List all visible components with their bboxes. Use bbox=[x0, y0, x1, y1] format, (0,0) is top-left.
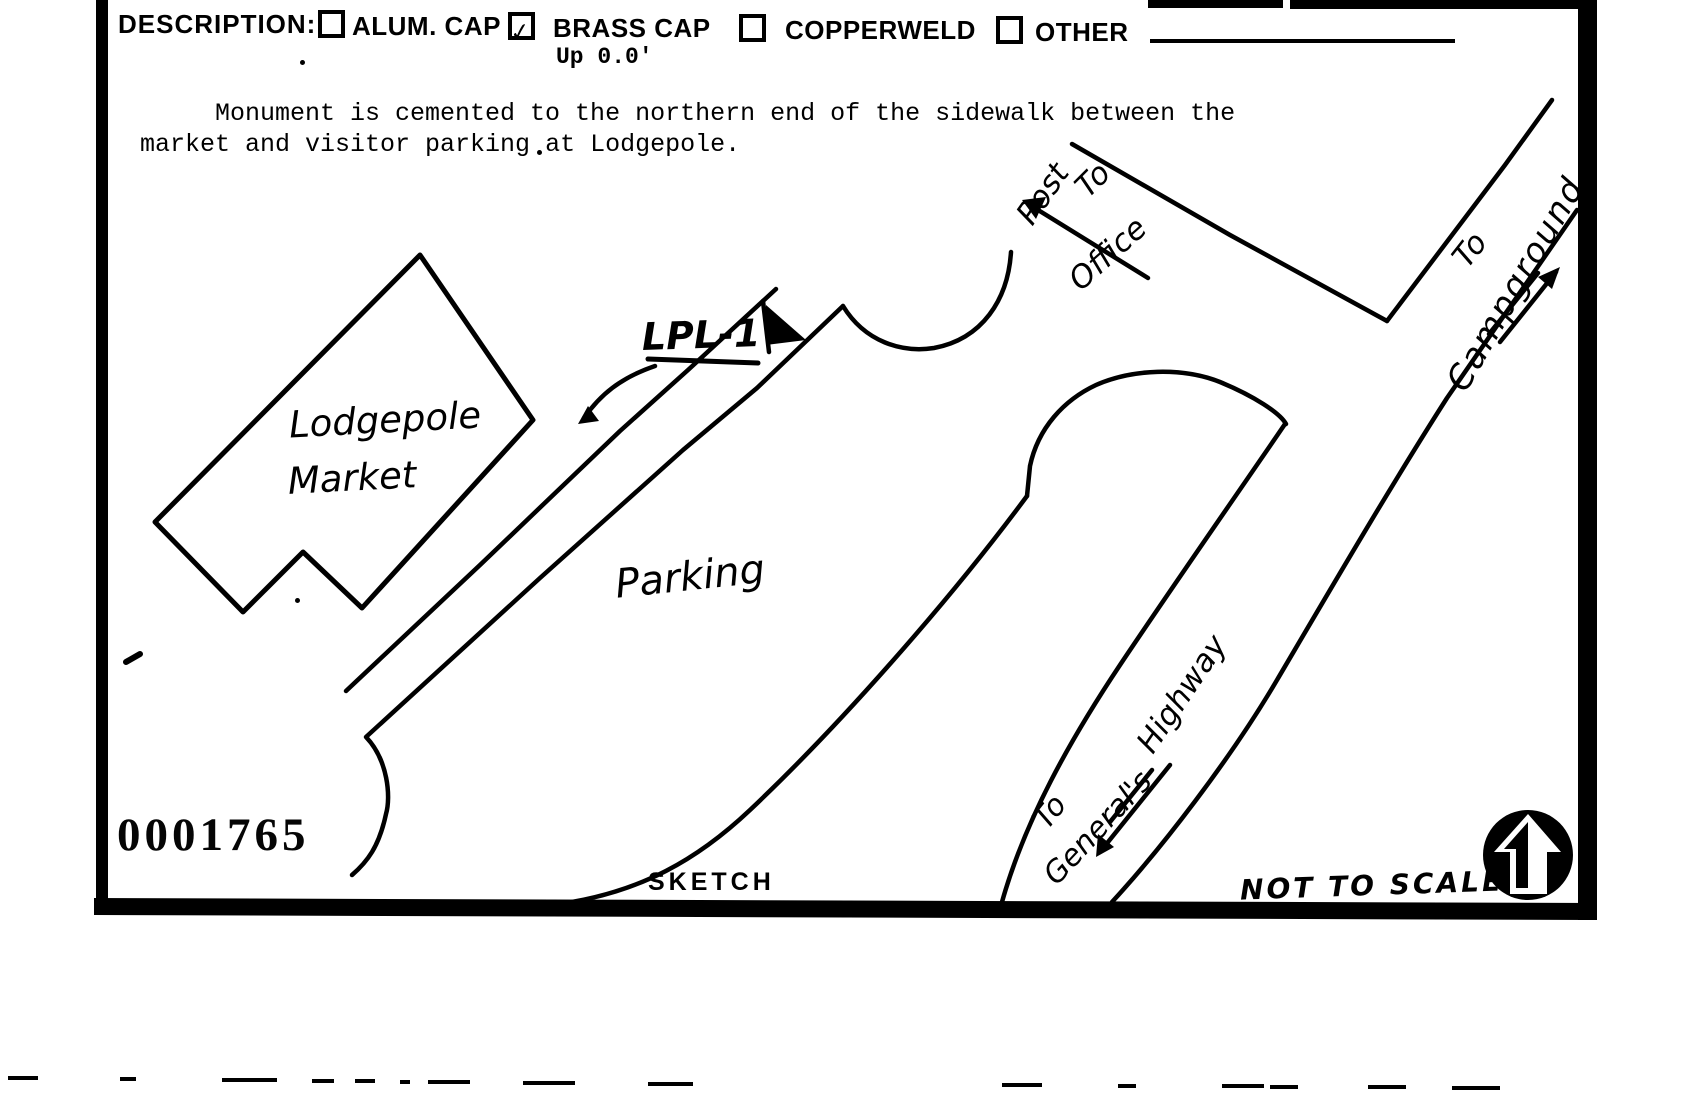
scan-dash bbox=[1222, 1084, 1264, 1088]
highway-left-edge bbox=[1002, 424, 1285, 902]
scan-dash bbox=[355, 1079, 375, 1083]
scan-speck bbox=[300, 60, 305, 65]
checkbox-copperweld[interactable] bbox=[739, 14, 766, 42]
scan-speck bbox=[295, 598, 300, 603]
scan-dash bbox=[400, 1080, 410, 1084]
frame-border-top-a bbox=[1148, 0, 1283, 8]
scan-dash bbox=[1452, 1086, 1500, 1090]
brass-cap-checkmark: ✓ bbox=[508, 17, 532, 48]
sketch-drawing bbox=[0, 0, 1696, 1095]
checkbox-copperweld-label: COPPERWELD bbox=[785, 15, 976, 46]
checkbox-alum-cap-label: ALUM. CAP bbox=[352, 11, 501, 42]
lpl1-underline bbox=[648, 359, 758, 363]
description-text-line1: Monument is cemented to the northern end… bbox=[215, 99, 1235, 128]
building-label-market: Market bbox=[287, 453, 418, 503]
scan-dash bbox=[648, 1082, 693, 1086]
scan-dash bbox=[8, 1076, 38, 1080]
description-text-line2: market and visitor parking at Lodgepole. bbox=[140, 130, 740, 159]
stamp-number: 0001765 bbox=[117, 808, 310, 862]
frame-border-top-b bbox=[1290, 0, 1597, 9]
scan-dash bbox=[428, 1080, 470, 1084]
scan-dash bbox=[312, 1079, 334, 1083]
scan-speck bbox=[537, 150, 542, 155]
scan-dash bbox=[1118, 1084, 1136, 1088]
monument-flag bbox=[766, 305, 806, 345]
checkbox-alum-cap[interactable] bbox=[318, 10, 345, 38]
scanned-monument-record-page: DESCRIPTION: ALUM. CAP ✓ BRASS CAP Up 0.… bbox=[0, 0, 1696, 1095]
parking-drive-edge bbox=[572, 496, 1027, 902]
brass-cap-elevation-note: Up 0.0' bbox=[556, 44, 653, 70]
checkbox-other-label: OTHER bbox=[1035, 17, 1129, 48]
other-blank-line bbox=[1150, 39, 1455, 43]
description-label: DESCRIPTION: bbox=[118, 9, 316, 40]
monument-leader-arrowhead bbox=[578, 406, 599, 424]
curb-arc bbox=[843, 252, 1011, 349]
scan-dash bbox=[1002, 1083, 1042, 1087]
scan-dash bbox=[120, 1077, 136, 1081]
scan-dash bbox=[222, 1078, 277, 1082]
frame-border-left bbox=[96, 0, 108, 915]
frame-border-right bbox=[1578, 0, 1597, 920]
checkbox-brass-cap-label: BRASS CAP bbox=[553, 13, 711, 44]
scan-dash bbox=[1270, 1085, 1298, 1089]
checkbox-other[interactable] bbox=[996, 16, 1023, 44]
sketch-caption: SKETCH bbox=[648, 868, 775, 897]
scan-dash bbox=[523, 1081, 575, 1085]
ink-mark bbox=[126, 654, 140, 662]
scan-dash bbox=[1368, 1085, 1406, 1089]
monument-label: LPL-1 bbox=[641, 311, 761, 359]
